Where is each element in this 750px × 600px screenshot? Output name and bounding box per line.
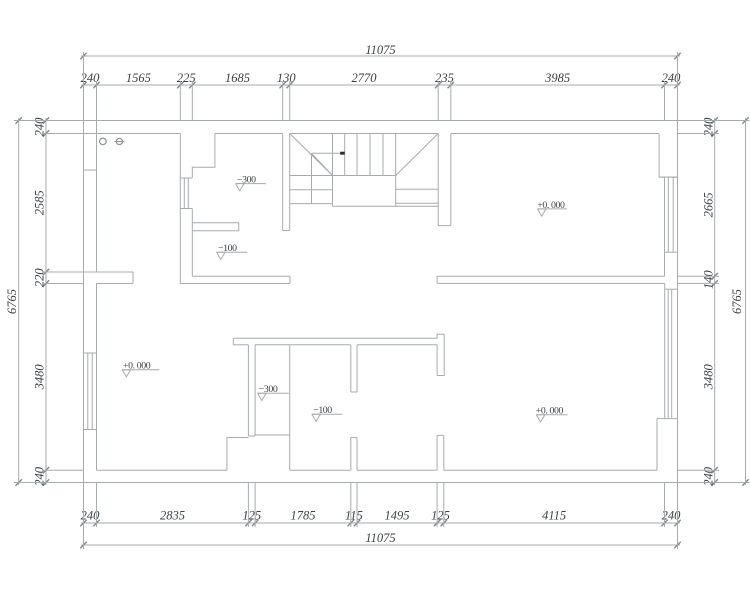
svg-text:3985: 3985 [544, 71, 570, 85]
svg-text:2585: 2585 [33, 190, 47, 215]
svg-text:11075: 11075 [365, 43, 395, 57]
svg-text:1565: 1565 [126, 71, 151, 85]
svg-text:2665: 2665 [702, 192, 716, 217]
svg-text:115: 115 [345, 509, 363, 523]
svg-text:220: 220 [33, 268, 47, 288]
svg-text:130: 130 [277, 71, 297, 85]
svg-text:+0. 000: +0. 000 [123, 361, 151, 372]
svg-text:125: 125 [431, 509, 450, 523]
svg-text:2770: 2770 [351, 71, 377, 85]
svg-text:1495: 1495 [385, 509, 410, 523]
svg-text:2835: 2835 [160, 509, 185, 523]
svg-text:140: 140 [702, 270, 716, 290]
svg-text:4115: 4115 [542, 509, 566, 523]
svg-text:+0. 000: +0. 000 [536, 406, 564, 417]
svg-text:6765: 6765 [5, 289, 19, 314]
svg-text:−100: −100 [218, 243, 237, 254]
svg-text:−100: −100 [313, 405, 332, 416]
svg-text:1685: 1685 [225, 71, 250, 85]
svg-text:125: 125 [242, 509, 261, 523]
svg-text:+0. 000: +0. 000 [537, 200, 565, 211]
svg-text:3480: 3480 [702, 364, 716, 391]
svg-text:11075: 11075 [365, 531, 395, 545]
svg-text:−300: −300 [237, 175, 256, 186]
svg-text:1785: 1785 [290, 509, 315, 523]
svg-text:3480: 3480 [33, 364, 47, 391]
svg-text:225: 225 [177, 71, 196, 85]
svg-text:−300: −300 [259, 384, 278, 395]
svg-text:6765: 6765 [730, 289, 744, 314]
